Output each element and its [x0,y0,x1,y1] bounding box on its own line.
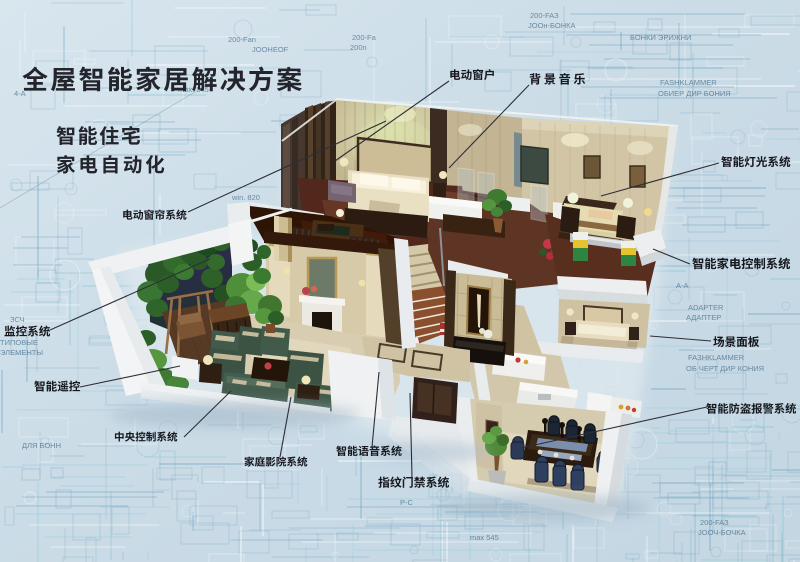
svg-text:JOOHEOF: JOOHEOF [252,45,289,54]
svg-text:ДЛЯ БОНН: ДЛЯ БОНН [22,441,61,450]
svg-text:200-FAЗ: 200-FAЗ [530,11,559,20]
svg-text:200-FAЗ: 200-FAЗ [700,518,729,527]
svg-text:JООн-БОНКА: JООн-БОНКА [528,21,576,30]
svg-text:ЭЛЕМЕНТЫ: ЭЛЕМЕНТЫ [0,348,43,357]
svg-text:P-C: P-C [400,498,414,507]
svg-text:ОБ ЧЕРТ ДИР КОНИЯ: ОБ ЧЕРТ ДИР КОНИЯ [686,364,764,373]
svg-text:200n: 200n [350,43,367,52]
svg-text:4-A: 4-A [14,89,26,98]
svg-text:A-A: A-A [676,281,689,290]
svg-text:200-Fan: 200-Fan [228,35,256,44]
svg-text:АДАПТЕР: АДАПТЕР [686,313,721,322]
svg-text:FAЗHKLAMMER: FAЗHKLAMMER [688,353,745,362]
svg-text:JООЧ-БОЧКА: JООЧ-БОЧКА [698,528,746,537]
svg-text:200-Fa: 200-Fa [352,33,377,42]
svg-text:max 545: max 545 [470,533,499,542]
svg-text:ADAPTER: ADAPTER [688,303,724,312]
svg-text:ОБИЕР ДИР БОНИЯ: ОБИЕР ДИР БОНИЯ [658,89,731,98]
svg-text:FASHKLAMMER: FASHKLAMMER [660,78,717,87]
svg-text:win. 820: win. 820 [231,193,260,202]
svg-text:БОНКИ ЭРИЖНИ: БОНКИ ЭРИЖНИ [630,33,691,42]
svg-text:ЗСЧ: ЗСЧ [10,315,25,324]
svg-text:ТИПОВЫЕ: ТИПОВЫЕ [0,338,38,347]
